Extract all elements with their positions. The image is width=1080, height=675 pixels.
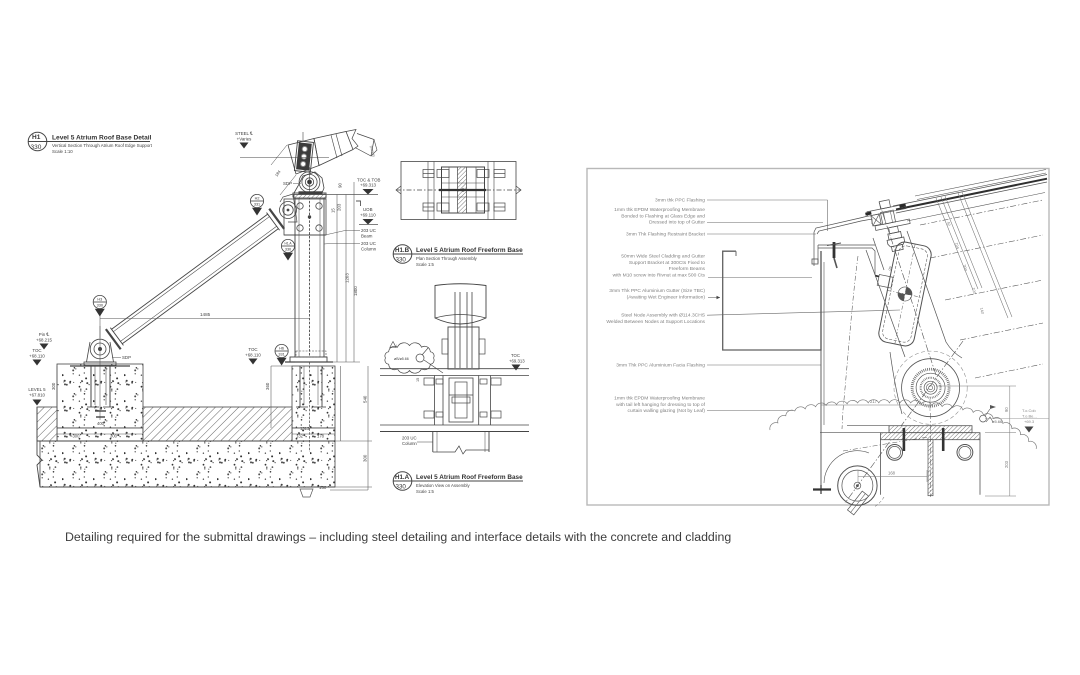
svg-text:TOC: TOC	[511, 353, 520, 358]
svg-text:ø5.66: ø5.66	[992, 419, 1003, 424]
svg-text:400: 400	[97, 421, 105, 426]
svg-text:Support Bracket at 300Cts Fixe: Support Bracket at 300Cts Fixed to	[629, 260, 705, 266]
svg-text:Scale 1:5: Scale 1:5	[416, 262, 435, 267]
svg-text:with M10 screw into Rivnut at: with M10 screw into Rivnut at max 500 Ct…	[613, 272, 706, 278]
svg-text:150: 150	[319, 485, 327, 490]
svg-text:330: 330	[97, 304, 103, 308]
svg-text:øB/ø5.66: øB/ø5.66	[394, 357, 409, 361]
svg-text:+69.3: +69.3	[1024, 419, 1035, 424]
svg-text:330: 330	[396, 257, 407, 264]
svg-text:Column: Column	[361, 247, 377, 252]
svg-text:STEEL ℄: STEEL ℄	[235, 131, 253, 136]
svg-text:178: 178	[317, 434, 325, 439]
svg-text:+69.313: +69.313	[509, 359, 525, 364]
svg-text:H6: H6	[279, 347, 284, 351]
svg-text:1mm thk EPDM Waterproofing Mem: 1mm thk EPDM Waterproofing Membrane	[614, 396, 705, 402]
svg-text:Bonded to Flashing at Glass Ed: Bonded to Flashing at Glass Edge and	[621, 213, 705, 219]
svg-text:1203: 1203	[345, 273, 350, 283]
svg-text:1485: 1485	[200, 312, 211, 317]
svg-text:330: 330	[31, 144, 42, 151]
svg-text:360: 360	[265, 382, 270, 390]
svg-text:(Awaiting Wet Engineer Informa: (Awaiting Wet Engineer Information)	[627, 294, 706, 300]
svg-text:H3: H3	[97, 298, 102, 302]
svg-text:+68.110: +68.110	[245, 353, 261, 358]
svg-text:60: 60	[887, 266, 892, 271]
svg-text:Elevation View on Assembly: Elevation View on Assembly	[416, 483, 471, 488]
svg-text:Scale 1:10: Scale 1:10	[52, 149, 73, 154]
svg-text:LEVEL 5: LEVEL 5	[28, 387, 46, 392]
svg-text:331: 331	[254, 203, 260, 207]
svg-text:15: 15	[416, 378, 420, 382]
svg-text:+68.215: +68.215	[36, 338, 53, 343]
svg-text:3mm Thk Flashing Restraint Bra: 3mm Thk Flashing Restraint Bracket	[626, 232, 706, 238]
svg-text:+68.110: +68.110	[29, 354, 45, 359]
svg-text:UOB: UOB	[363, 207, 373, 212]
svg-text:Beam: Beam	[361, 234, 373, 239]
svg-text:T.o.Col•: T.o.Col•	[1022, 408, 1036, 413]
svg-text:+69.110: +69.110	[360, 213, 376, 218]
svg-text:90: 90	[1004, 407, 1009, 412]
svg-text:331: 331	[278, 353, 284, 357]
svg-text:300: 300	[51, 382, 56, 390]
svg-text:H1.B: H1.B	[395, 247, 410, 254]
svg-text:203 UC: 203 UC	[402, 436, 417, 441]
svg-text:300: 300	[363, 454, 368, 462]
svg-text:203: 203	[1004, 460, 1009, 468]
svg-text:Welded Between Nodes at Suppor: Welded Between Nodes at Support Location…	[606, 319, 705, 325]
svg-text:132: 132	[296, 434, 304, 439]
svg-text:+Varies: +Varies	[237, 137, 252, 142]
svg-text:with tail left hanging for dre: with tail left hanging for dressing to t…	[616, 402, 706, 408]
svg-text:1mm thk EPDM Waterproofing Mem: 1mm thk EPDM Waterproofing Membrane	[614, 207, 705, 213]
svg-text:184: 184	[274, 169, 282, 178]
svg-text:TOC: TOC	[248, 347, 257, 352]
svg-text:Level 5 Atrium Roof Base Detai: Level 5 Atrium Roof Base Detail	[52, 135, 152, 142]
svg-text:TOC: TOC	[32, 348, 41, 353]
svg-text:217: 217	[870, 399, 878, 404]
svg-text:H1: H1	[32, 134, 41, 141]
svg-text:3mm Thk PPC Aluminium Gutter (: 3mm Thk PPC Aluminium Gutter (Size TBC)	[609, 288, 705, 294]
svg-text:Vertical Section Through Atriu: Vertical Section Through Atrium Roof Edg…	[52, 143, 153, 148]
svg-text:SDP: SDP	[283, 181, 292, 186]
svg-text:168: 168	[888, 471, 896, 476]
svg-text:90: 90	[338, 183, 343, 188]
svg-text:+69.313: +69.313	[360, 183, 377, 188]
svg-text:Level 5 Atrium Roof Freeform B: Level 5 Atrium Roof Freeform Base	[416, 247, 523, 254]
svg-text:1313: 1313	[300, 426, 310, 431]
svg-text:50mm Wide Steel Cladding and G: 50mm Wide Steel Cladding and Gutter	[621, 254, 705, 260]
svg-text:330: 330	[396, 484, 407, 491]
svg-text:Scale 1:5: Scale 1:5	[416, 489, 435, 494]
svg-text:3mm thk PPC Flashing: 3mm thk PPC Flashing	[655, 198, 705, 204]
svg-text:203 UC: 203 UC	[361, 228, 376, 233]
svg-text:+67.810: +67.810	[29, 393, 46, 398]
svg-text:SDP: SDP	[122, 355, 131, 360]
svg-text:300: 300	[110, 434, 118, 439]
svg-text:H2: H2	[255, 197, 260, 201]
svg-text:Pin ℄: Pin ℄	[39, 332, 50, 337]
svg-text:203: 203	[337, 203, 342, 211]
svg-text:Steel Node Assembly with Ø114.: Steel Node Assembly with Ø114.3CHS	[621, 313, 706, 319]
svg-text:540: 540	[363, 395, 368, 403]
svg-text:curtain walling glazing (Not b: curtain walling glazing (Not by Leaf)	[628, 408, 706, 414]
svg-text:330: 330	[285, 248, 291, 252]
svg-text:Freeform Beams: Freeform Beams	[669, 266, 706, 272]
svg-text:<300: <300	[70, 434, 80, 439]
svg-text:Column: Column	[402, 441, 417, 446]
svg-text:1800: 1800	[353, 286, 358, 296]
svg-text:15: 15	[331, 208, 336, 213]
svg-text:Level 5 Atrium Roof Freeform B: Level 5 Atrium Roof Freeform Base	[416, 474, 523, 481]
svg-text:Dressed into top of Gutter: Dressed into top of Gutter	[649, 220, 705, 226]
svg-text:T.o.Be...: T.o.Be...	[1022, 414, 1037, 419]
svg-text:3mm Thk PPC Aluminium Facia Fl: 3mm Thk PPC Aluminium Facia Flashing	[616, 363, 705, 369]
svg-text:Plan Section Through Assembly: Plan Section Through Assembly	[416, 256, 478, 261]
svg-text:H1.A: H1.A	[284, 242, 292, 246]
svg-text:203 UC: 203 UC	[361, 241, 376, 246]
svg-text:H1.A: H1.A	[395, 474, 410, 481]
